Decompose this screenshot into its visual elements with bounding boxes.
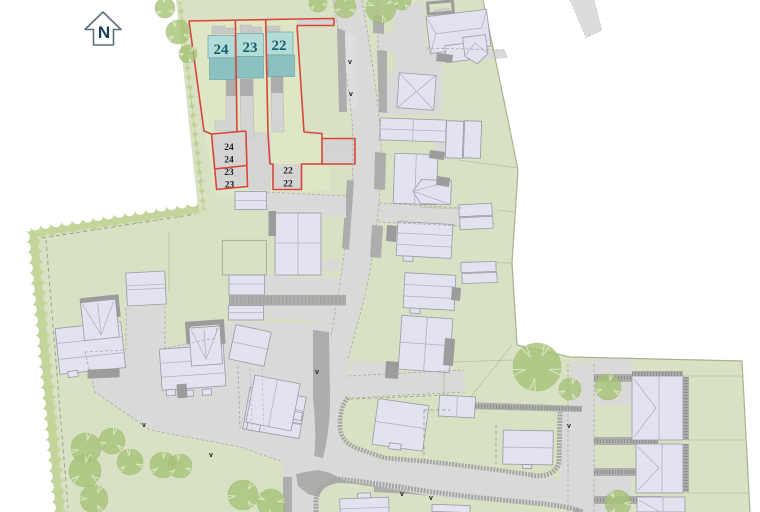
svg-text:v: v: [209, 452, 213, 459]
svg-text:v: v: [400, 491, 404, 498]
svg-text:v: v: [315, 369, 319, 376]
svg-text:24: 24: [224, 156, 234, 166]
svg-text:23: 23: [224, 168, 234, 178]
svg-text:v: v: [349, 91, 353, 98]
svg-text:22: 22: [272, 38, 287, 54]
svg-text:v: v: [142, 422, 146, 429]
svg-text:22: 22: [283, 167, 293, 177]
svg-text:v: v: [567, 423, 571, 430]
svg-text:v: v: [348, 59, 352, 66]
svg-text:v: v: [429, 495, 433, 502]
svg-text:24: 24: [214, 42, 230, 58]
svg-text:23: 23: [243, 40, 258, 56]
svg-text:24: 24: [224, 143, 234, 153]
svg-text:N: N: [98, 23, 110, 42]
svg-text:22: 22: [283, 180, 293, 190]
